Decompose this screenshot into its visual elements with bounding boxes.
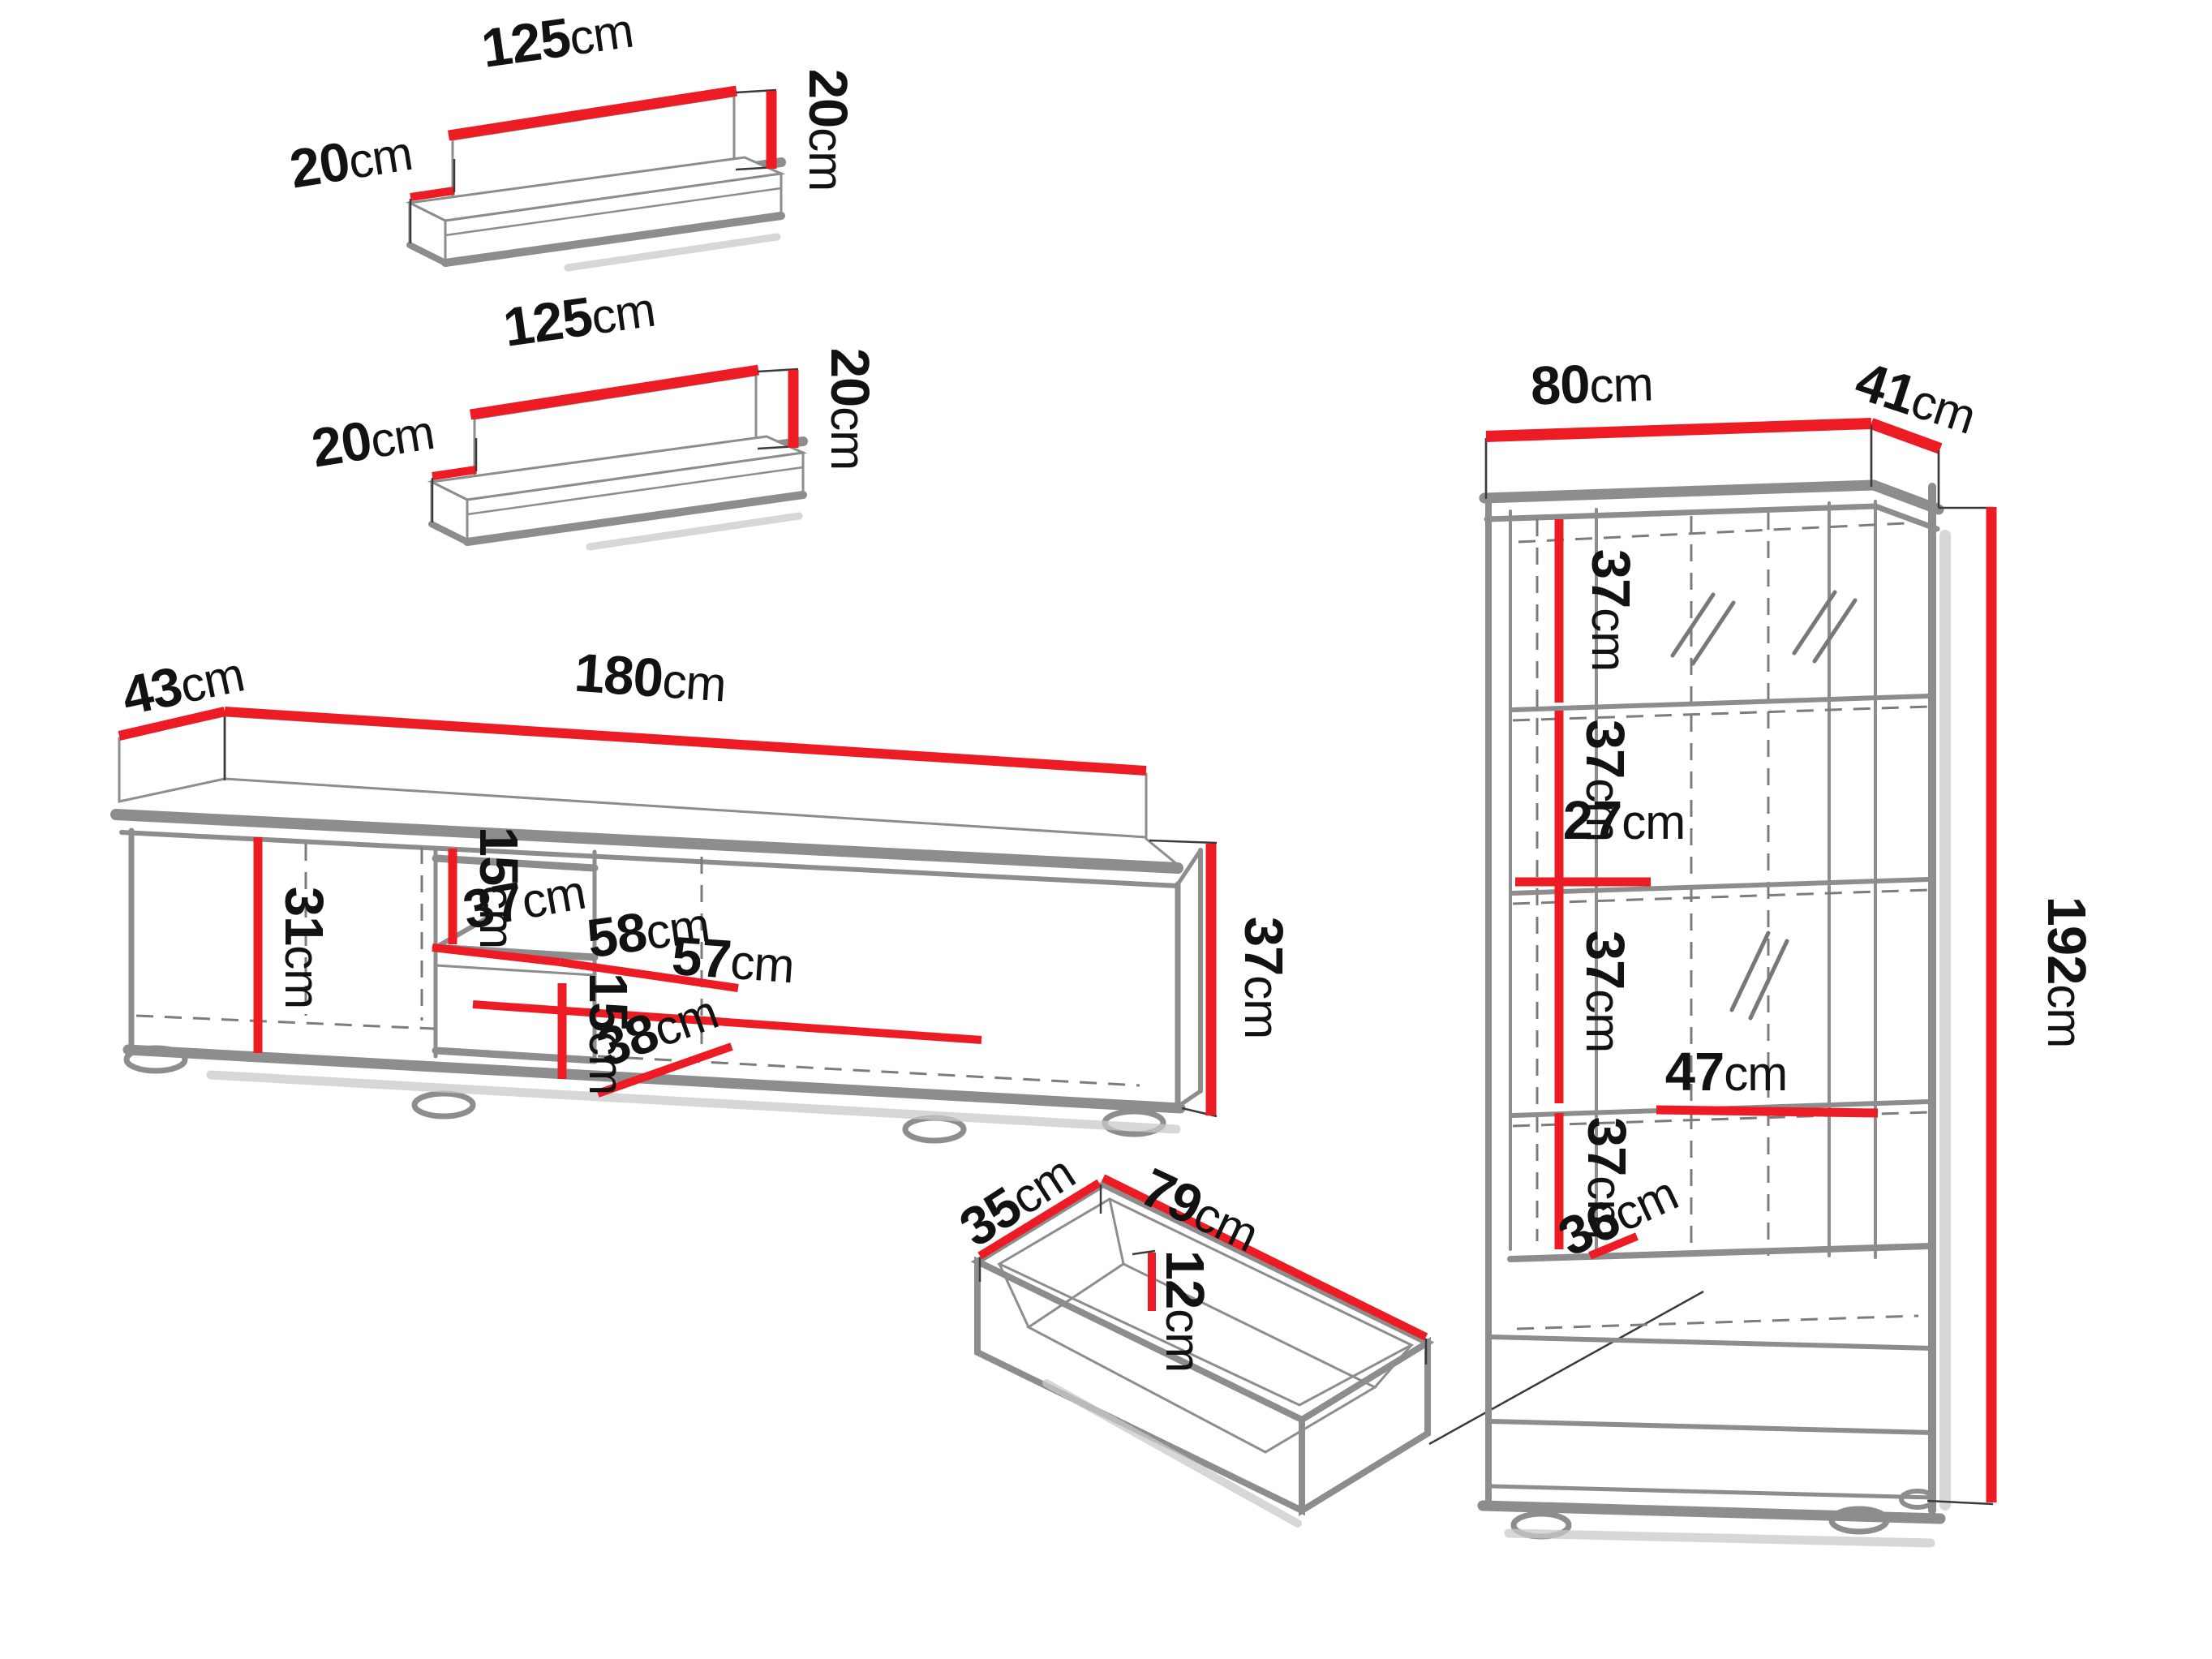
dim-line-shelf-mid-depth	[432, 470, 476, 476]
dim-label-cabinet-section3: 37cm	[1574, 931, 1635, 1053]
dim-label-shelf-mid-depth: 20cm	[307, 400, 437, 479]
tv-rail-front-face	[225, 716, 1146, 837]
cabinet-drawer-divider	[1491, 1421, 1932, 1433]
tv-hidden-back-bottom	[136, 1016, 434, 1029]
dim-label-shelf-mid-width: 125cm	[500, 277, 658, 359]
tv-foot	[414, 1094, 473, 1116]
dim-line-cabinet-right-col	[1656, 1110, 1878, 1113]
glass-mark	[1693, 603, 1733, 664]
tv-right-side-bottom	[1178, 1091, 1200, 1107]
glass-mark	[1732, 933, 1768, 1010]
cabinet-top-band2	[1487, 506, 1875, 519]
dim-label-shelf-top-height: 20cm	[797, 69, 858, 191]
dim-label-cabinet-left-col: 27cm	[1563, 790, 1686, 851]
cabinet-hidden-bottom	[1517, 1316, 1918, 1329]
diagram-canvas: 125cm 20cm 20cm 125cm 20cm 20cm	[0, 0, 2212, 1659]
tv-foot	[905, 1118, 964, 1141]
glass-mark	[1815, 600, 1855, 661]
tv-niche-bottom	[436, 1051, 595, 1060]
dim-line-shelf-top-depth	[410, 191, 454, 197]
dim-label-tv-left-height: 31cm	[273, 887, 334, 1009]
dim-line-tv-right-width	[473, 1004, 981, 1040]
dim-label-tv-height: 37cm	[1233, 917, 1294, 1039]
tv-stand-drawing: 43cm 180cm 31cm 15cm 37cm 58cm 57cm 15cm…	[116, 643, 1294, 1141]
cabinet-hidden-top	[1518, 523, 1906, 542]
cabinet-shadow-bottom	[1509, 1533, 1931, 1543]
dim-label-cabinet-width: 80cm	[1530, 351, 1654, 416]
ext-line	[1149, 840, 1217, 843]
dim-label-tv-width: 180cm	[573, 643, 728, 714]
dim-label-drawer-height: 12cm	[1154, 1250, 1215, 1373]
dim-label-cabinet-section1: 37cm	[1580, 549, 1641, 672]
ext-line	[1927, 1501, 1993, 1504]
tv-slab-right-corner	[1146, 839, 1178, 865]
dim-label-cabinet-right-col: 47cm	[1665, 1042, 1788, 1102]
dim-label-shelf-mid-height: 20cm	[819, 348, 880, 471]
cabinet-drawer-top	[1491, 1337, 1932, 1348]
furniture-dimensions-diagram: 125cm 20cm 20cm 125cm 20cm 20cm	[0, 0, 2212, 1659]
dim-label-cabinet-height: 192cm	[2036, 896, 2097, 1048]
dim-label-shelf-top-width: 125cm	[478, 0, 636, 80]
dim-label-shelf-top-depth: 20cm	[286, 121, 415, 200]
glass-mark	[1673, 595, 1713, 655]
shelf-top-drawing: 125cm 20cm 20cm	[286, 0, 858, 268]
cabinet-base-top	[1491, 1486, 1932, 1498]
dim-label-tv-right-width: 57cm	[670, 926, 796, 995]
shelf-middle-drawing: 125cm 20cm 20cm	[307, 277, 880, 547]
